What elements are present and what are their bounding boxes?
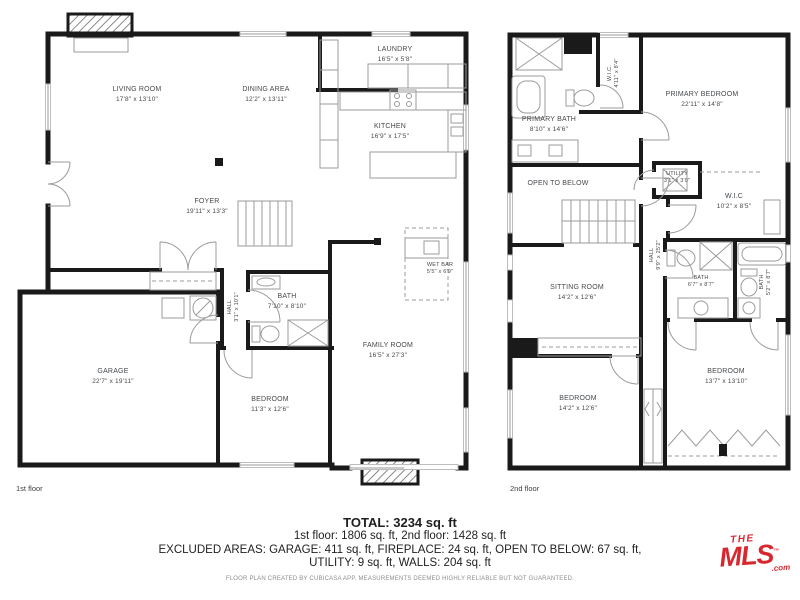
room-label-living-room: LIVING ROOM17'8" x 13'10"	[113, 85, 162, 105]
room-label-open-to-below: OPEN TO BELOW	[527, 179, 588, 189]
caption-second-floor: 2nd floor	[510, 484, 539, 493]
trademark-symbol: ™	[773, 548, 779, 554]
room-label-wic: W.I.C10'2" x 8'5"	[717, 192, 751, 212]
room-label-bath-3: BATH5'2" x 8'7"	[759, 269, 773, 295]
room-label-kitchen: KITCHEN16'9" x 17'5"	[371, 122, 409, 142]
caption-first-floor: 1st floor	[16, 484, 43, 493]
summary-floors: 1st floor: 1806 sq. ft, 2nd floor: 1428 …	[0, 530, 800, 542]
room-label-utility: UTILITY3'1" x 3'0"	[664, 171, 690, 185]
room-label-dining-area: DINING AREA12'2" x 13'11"	[242, 85, 289, 105]
room-label-bath-2: BATH6'7" x 8'7"	[688, 275, 714, 289]
room-label-primary-bedroom: PRIMARY BEDROOM22'11" x 14'8"	[666, 90, 739, 110]
room-label-family-room: FAMILY ROOM16'5" x 27'3"	[363, 341, 413, 361]
room-label-bath-1: BATH7'10" x 8'10"	[268, 292, 306, 312]
floor-plan-page: LIVING ROOM17'8" x 13'10" DINING AREA12'…	[0, 0, 800, 600]
room-label-laundry: LAUNDRY16'5" x 5'8"	[378, 45, 413, 65]
room-label-sitting-room: SITTING ROOM14'2" x 12'6"	[550, 283, 604, 303]
room-label-hall-1: HALL3'1" x 10'1"	[227, 292, 241, 322]
summary-disclaimer: FLOOR PLAN CREATED BY CUBICASA APP. MEAS…	[0, 576, 800, 582]
summary-excluded-1: EXCLUDED AREAS: GARAGE: 411 sq. ft, FIRE…	[0, 544, 800, 556]
room-label-wic-small: W.I.C.4'11" x 8'4"	[607, 58, 621, 87]
summary-total: TOTAL: 3234 sq. ft	[0, 515, 800, 530]
room-label-garage: GARAGE22'7" x 19'11"	[92, 367, 134, 387]
room-label-bedroom-1: BEDROOM11'3" x 12'6"	[251, 395, 289, 415]
room-label-primary-bath: PRIMARY BATH8'10" x 14'6"	[522, 115, 576, 135]
summary-excluded-2: UTILITY: 9 sq. ft, WALLS: 204 sq. ft	[0, 557, 800, 569]
room-label-foyer: FOYER19'11" x 13'3"	[186, 197, 228, 217]
mls-logo: THE MLS™ .com	[716, 531, 798, 598]
room-label-bedroom-2: BEDROOM14'2" x 12'6"	[559, 394, 597, 414]
room-label-wet-bar: WET BAR5'5" x 6'9"	[427, 262, 453, 276]
room-label-bedroom-3: BEDROOM13'7" x 13'10"	[705, 367, 747, 387]
room-label-hall-2: HALL9'9" x 25'2"	[649, 240, 663, 270]
